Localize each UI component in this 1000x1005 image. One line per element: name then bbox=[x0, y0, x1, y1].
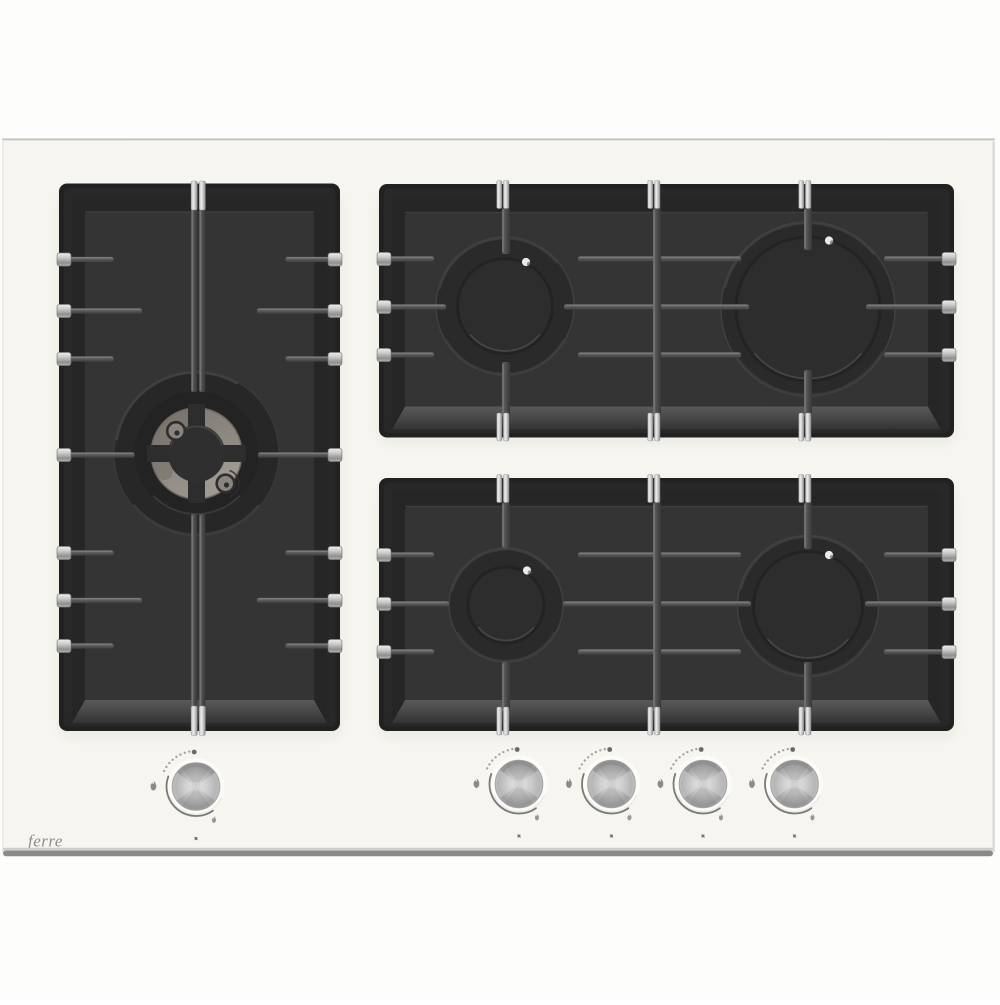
svg-text:ferre: ferre bbox=[28, 832, 63, 851]
